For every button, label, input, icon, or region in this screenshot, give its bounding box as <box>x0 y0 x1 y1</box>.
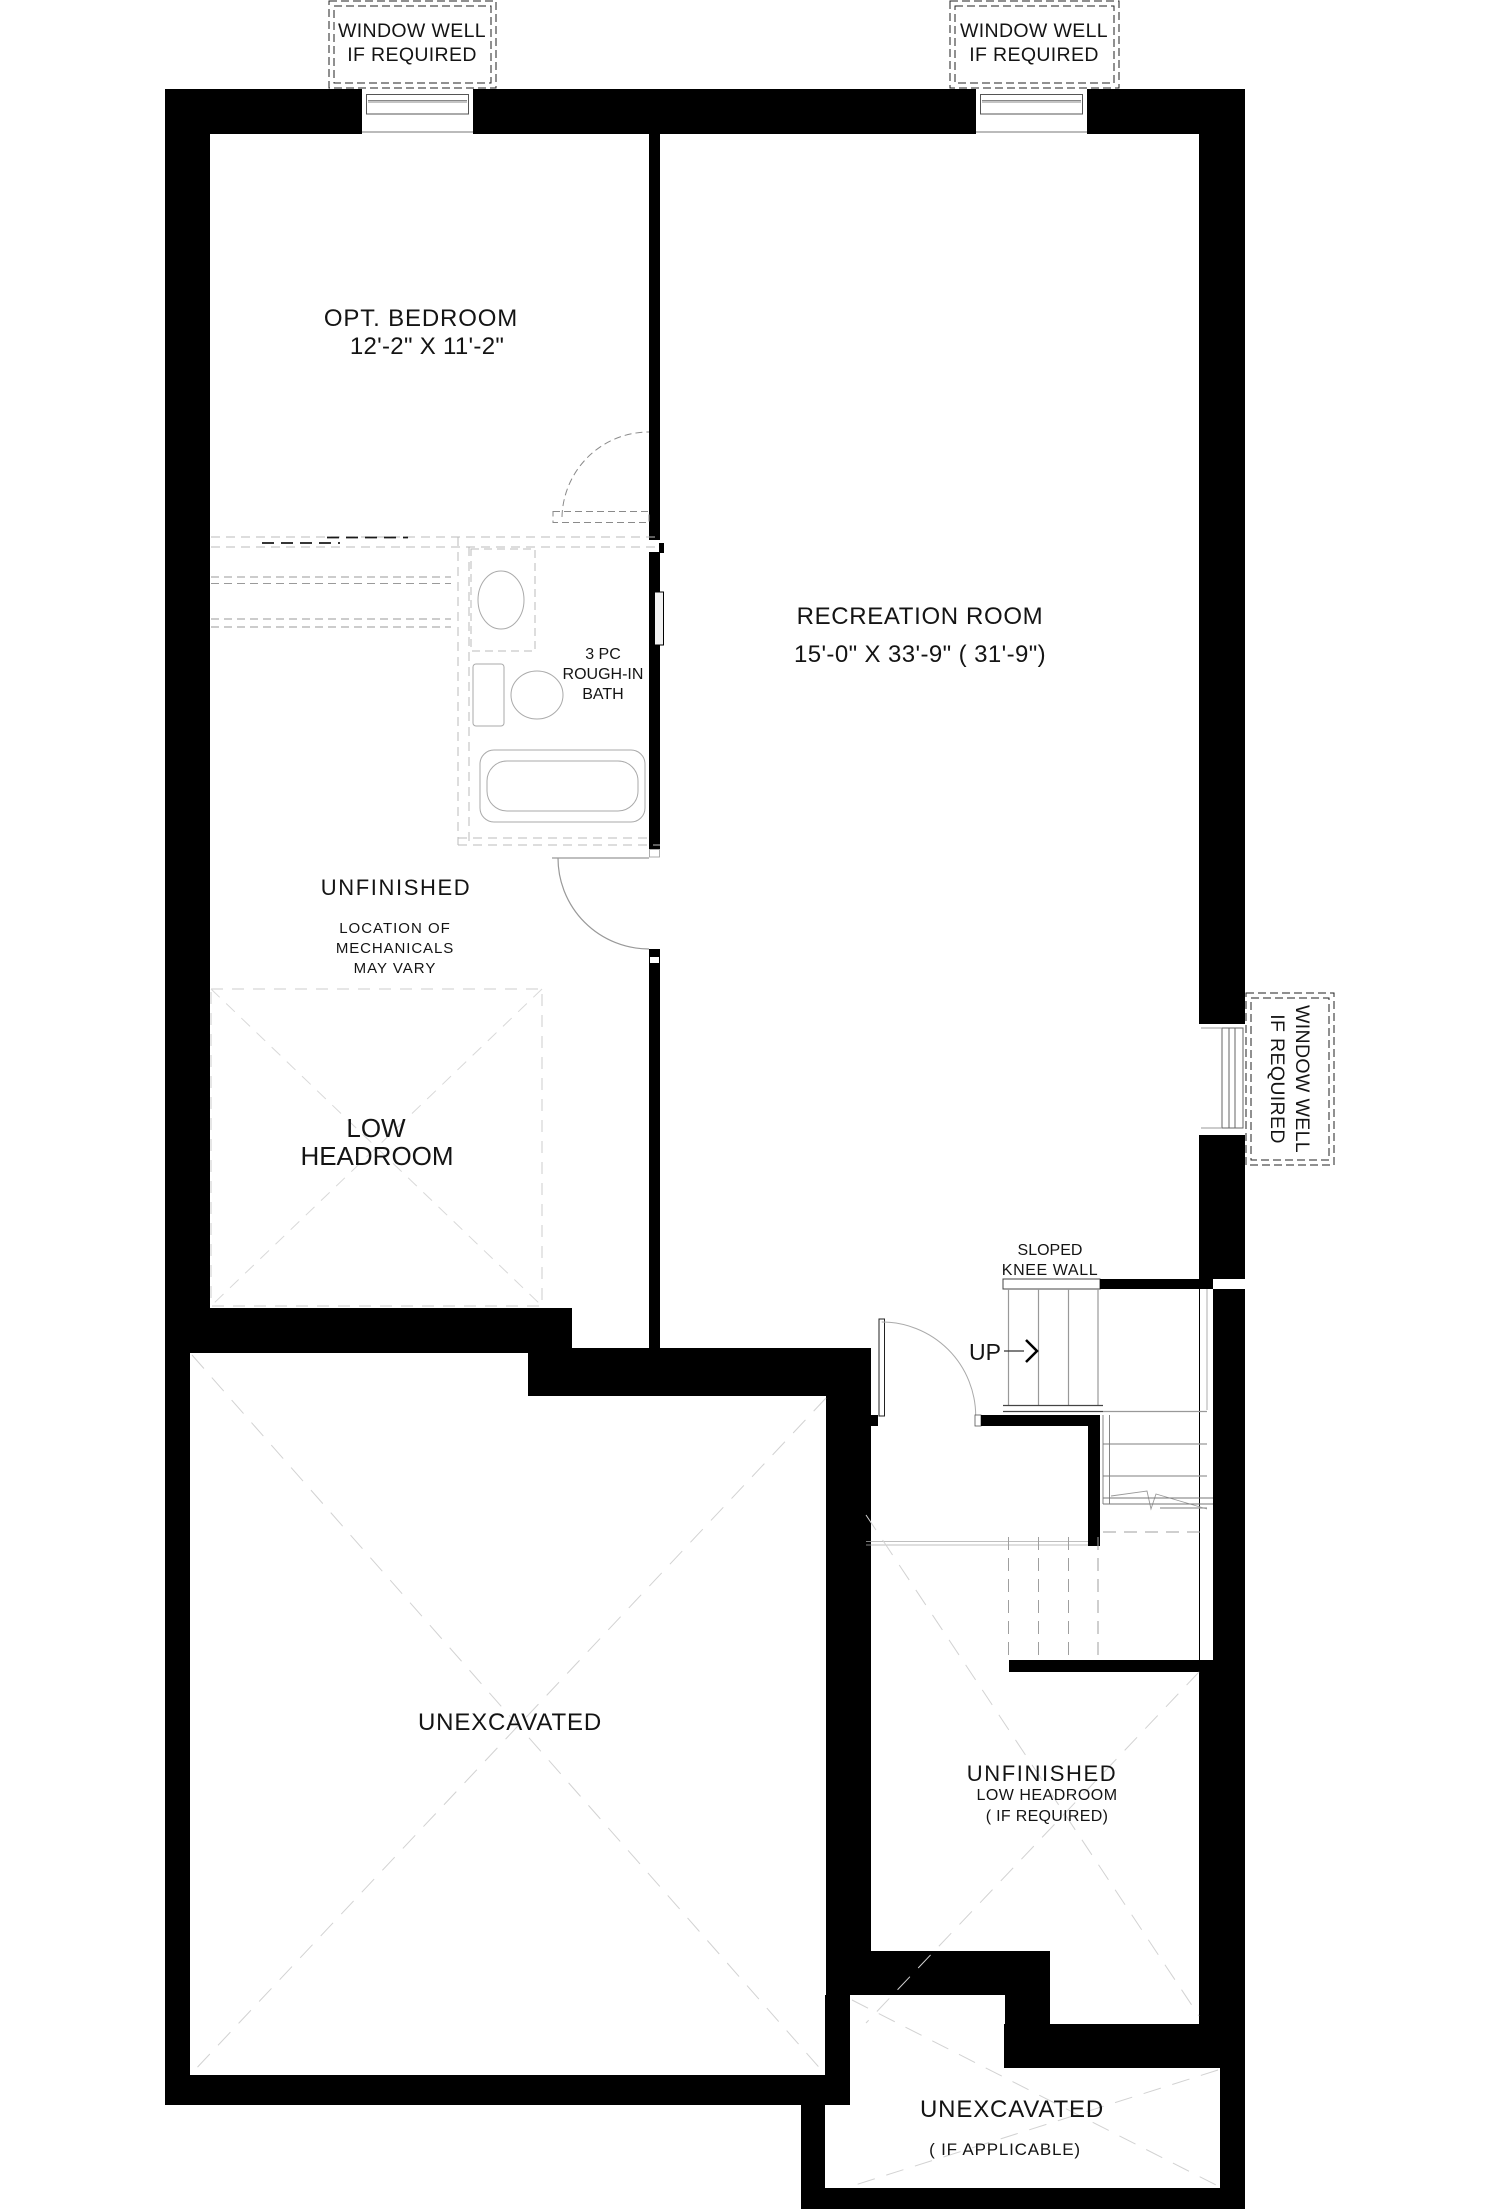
svg-text:WINDOW WELL: WINDOW WELL <box>1291 1005 1313 1153</box>
svg-text:BATH: BATH <box>582 686 623 703</box>
svg-text:UNEXCAVATED: UNEXCAVATED <box>418 1709 602 1736</box>
svg-text:IF REQUIRED: IF REQUIRED <box>347 44 477 66</box>
svg-text:SLOPED: SLOPED <box>1018 1242 1083 1259</box>
svg-text:ROUGH-IN: ROUGH-IN <box>563 666 644 683</box>
svg-text:12'-2" X 11'-2": 12'-2" X 11'-2" <box>350 333 504 360</box>
svg-text:( IF REQUIRED): ( IF REQUIRED) <box>986 1808 1108 1825</box>
svg-text:UNFINISHED: UNFINISHED <box>321 875 471 900</box>
svg-text:3 PC: 3 PC <box>585 646 621 663</box>
svg-text:( IF APPLICABLE): ( IF APPLICABLE) <box>929 2140 1081 2159</box>
svg-text:LOCATION OF: LOCATION OF <box>339 920 451 937</box>
svg-text:IF REQUIRED: IF REQUIRED <box>1266 1014 1288 1144</box>
svg-text:LOW: LOW <box>346 1113 406 1143</box>
svg-text:WINDOW WELL: WINDOW WELL <box>960 20 1108 42</box>
svg-text:UP: UP <box>969 1339 1001 1365</box>
svg-text:RECREATION ROOM: RECREATION ROOM <box>797 603 1044 630</box>
svg-text:UNEXCAVATED: UNEXCAVATED <box>920 2096 1104 2123</box>
svg-text:OPT. BEDROOM: OPT. BEDROOM <box>324 305 518 332</box>
svg-text:15'-0" X 33'-9" ( 31'-9"): 15'-0" X 33'-9" ( 31'-9") <box>794 641 1046 668</box>
svg-text:KNEE WALL: KNEE WALL <box>1002 1262 1098 1279</box>
svg-text:IF REQUIRED: IF REQUIRED <box>969 44 1099 66</box>
svg-text:WINDOW WELL: WINDOW WELL <box>338 20 486 42</box>
svg-text:MAY VARY: MAY VARY <box>354 960 437 977</box>
svg-text:UNFINISHED: UNFINISHED <box>967 1761 1117 1786</box>
svg-text:HEADROOM: HEADROOM <box>300 1141 453 1171</box>
svg-text:MECHANICALS: MECHANICALS <box>336 940 454 957</box>
svg-text:LOW HEADROOM: LOW HEADROOM <box>976 1787 1117 1804</box>
